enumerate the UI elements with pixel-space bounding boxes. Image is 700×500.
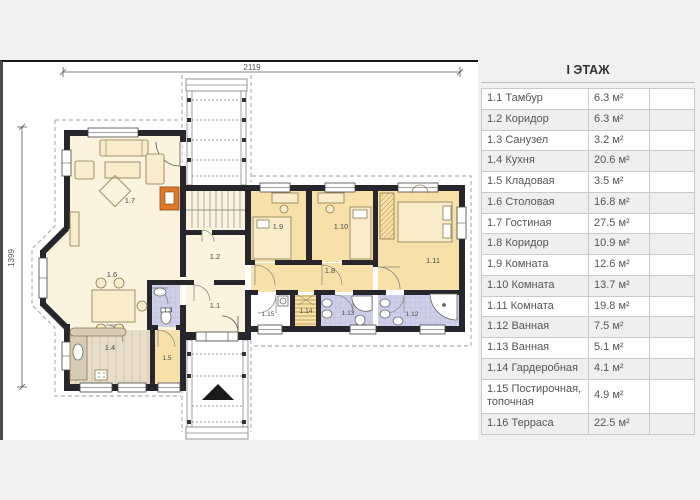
room-label: 1.3 [163,307,172,314]
room-label: 1.4 [105,343,115,352]
legend-room-area: 3.5 м² [589,172,650,193]
pillow [443,206,451,220]
sink [322,299,332,307]
legend-room-name: 1.8 Коридор [482,234,589,255]
dim-left-label: 1399 [7,249,16,267]
corridor-1-8-floor [251,263,373,292]
wardrobe [380,193,394,239]
washing-machine [278,296,288,306]
legend-room-area: 4.9 м² [589,379,650,414]
legend-room-name: 1.2 Коридор [482,109,589,130]
kitchen-sink [73,344,83,360]
legend-row: 1.11 Комната19.8 м² [482,296,695,317]
desk [272,193,298,203]
entry-porch [186,340,248,439]
legend-row: 1.16 Терраса22.5 м² [482,414,695,435]
legend-empty-cell [650,192,695,213]
legend-row: 1.2 Коридор6.3 м² [482,109,695,130]
legend-room-area: 6.3 м² [589,109,650,130]
room-label: 1.12 [406,311,419,318]
sofa [100,140,148,156]
chair [96,278,106,288]
legend-row: 1.13 Ванная5.1 м² [482,338,695,359]
legend-row: 1.6 Столовая16.8 м² [482,192,695,213]
pillow [257,220,269,228]
legend-row: 1.7 Гостиная27.5 м² [482,213,695,234]
toilet [393,317,403,325]
legend-empty-cell [650,109,695,130]
legend-panel: I ЭТАЖ 1.1 Тамбур6.3 м²1.2 Коридор6.3 м²… [481,60,695,435]
legend-room-name: 1.5 Кладовая [482,172,589,193]
room-label: 1.13 [342,310,355,317]
room-label: 1.2 [210,252,220,261]
legend-room-area: 4.1 м² [589,358,650,379]
legend-room-name: 1.13 Ванная [482,338,589,359]
desk-chair [326,205,334,213]
legend-room-name: 1.9 Комната [482,255,589,276]
legend-row: 1.12 Ванная7.5 м² [482,317,695,338]
room-label: 1.10 [334,222,349,231]
legend-room-name: 1.16 Терраса [482,414,589,435]
legend-row: 1.8 Коридор10.9 м² [482,234,695,255]
sink [322,310,332,318]
stove [95,370,107,380]
legend-empty-cell [650,317,695,338]
legend-empty-cell [650,338,695,359]
armchair [75,161,94,179]
room-label: 1.1 [210,301,220,310]
pillow [443,224,451,238]
legend-row: 1.1 Тамбур6.3 м² [482,89,695,110]
legend-empty-cell [650,89,695,110]
legend-room-area: 27.5 м² [589,213,650,234]
room-label: 1.6 [107,270,117,279]
legend-row: 1.9 Комната12.6 м² [482,255,695,276]
floor-plan-canvas: 2119 1399 1.1 1.2 1.3 1.4 1.5 1.6 1.7 1.… [0,60,478,440]
sink [154,288,166,296]
fireplace [160,187,179,210]
sink [380,310,390,318]
toilet [355,315,365,325]
legend-room-area: 22.5 м² [589,414,650,435]
room-label: 1.15 [262,311,275,318]
sink [380,299,390,307]
legend-row: 1.15 Постирочная, топочная4.9 м² [482,379,695,414]
legend-room-area: 5.1 м² [589,338,650,359]
legend-room-area: 12.6 м² [589,255,650,276]
coffee-table [105,162,140,178]
legend-row: 1.14 Гардеробная4.1 м² [482,358,695,379]
legend-room-name: 1.14 Гардеробная [482,358,589,379]
legend-empty-cell [650,172,695,193]
legend-row: 1.10 Комната13.7 м² [482,275,695,296]
legend-header: I ЭТАЖ [481,60,695,83]
entrance-arrow [202,384,234,400]
legend-room-area: 6.3 м² [589,89,650,110]
tv-unit [70,212,79,246]
legend-room-name: 1.4 Кухня [482,151,589,172]
hall-floor [186,189,245,336]
desk-chair [280,205,288,213]
legend-room-area: 10.9 м² [589,234,650,255]
floor-plan: 2119 1399 1.1 1.2 1.3 1.4 1.5 1.6 1.7 1.… [3,62,478,440]
legend-room-name: 1.11 Комната [482,296,589,317]
legend-empty-cell [650,255,695,276]
legend-row: 1.4 Кухня20.6 м² [482,151,695,172]
legend-room-name: 1.10 Комната [482,275,589,296]
chaise [146,154,164,184]
legend-row: 1.5 Кладовая3.5 м² [482,172,695,193]
legend-row: 1.3 Санузел3.2 м² [482,130,695,151]
legend-empty-cell [650,379,695,414]
pillow [353,210,367,218]
legend-room-area: 20.6 м² [589,151,650,172]
legend-room-name: 1.7 Гостиная [482,213,589,234]
room-label: 1.5 [162,355,171,362]
legend-room-name: 1.3 Санузел [482,130,589,151]
legend-room-area: 3.2 м² [589,130,650,151]
legend-room-name: 1.12 Ванная [482,317,589,338]
legend-empty-cell [650,358,695,379]
desk [318,193,344,203]
legend-empty-cell [650,151,695,172]
dining-table [92,290,135,322]
legend-room-area: 7.5 м² [589,317,650,338]
chair [114,278,124,288]
room-label: 1.11 [426,256,440,265]
legend-empty-cell [650,275,695,296]
legend-room-area: 13.7 м² [589,275,650,296]
legend-room-area: 19.8 м² [589,296,650,317]
room-label: 1.7 [125,196,135,205]
kitchen-peninsula [70,328,126,336]
room-label: 1.8 [325,266,335,275]
legend-room-name: 1.6 Столовая [482,192,589,213]
legend-empty-cell [650,234,695,255]
legend-empty-cell [650,296,695,317]
legend-empty-cell [650,213,695,234]
legend-empty-cell [650,414,695,435]
legend-room-name: 1.1 Тамбур [482,89,589,110]
chair [137,301,147,311]
dim-top-label: 2119 [243,63,261,72]
terrace-pergola [186,79,247,185]
room-label: 1.14 [300,308,313,315]
legend-room-name: 1.15 Постирочная, топочная [482,379,589,414]
legend-empty-cell [650,130,695,151]
legend-room-area: 16.8 м² [589,192,650,213]
legend-table: 1.1 Тамбур6.3 м²1.2 Коридор6.3 м²1.3 Сан… [481,88,695,435]
room-label: 1.9 [273,222,283,231]
